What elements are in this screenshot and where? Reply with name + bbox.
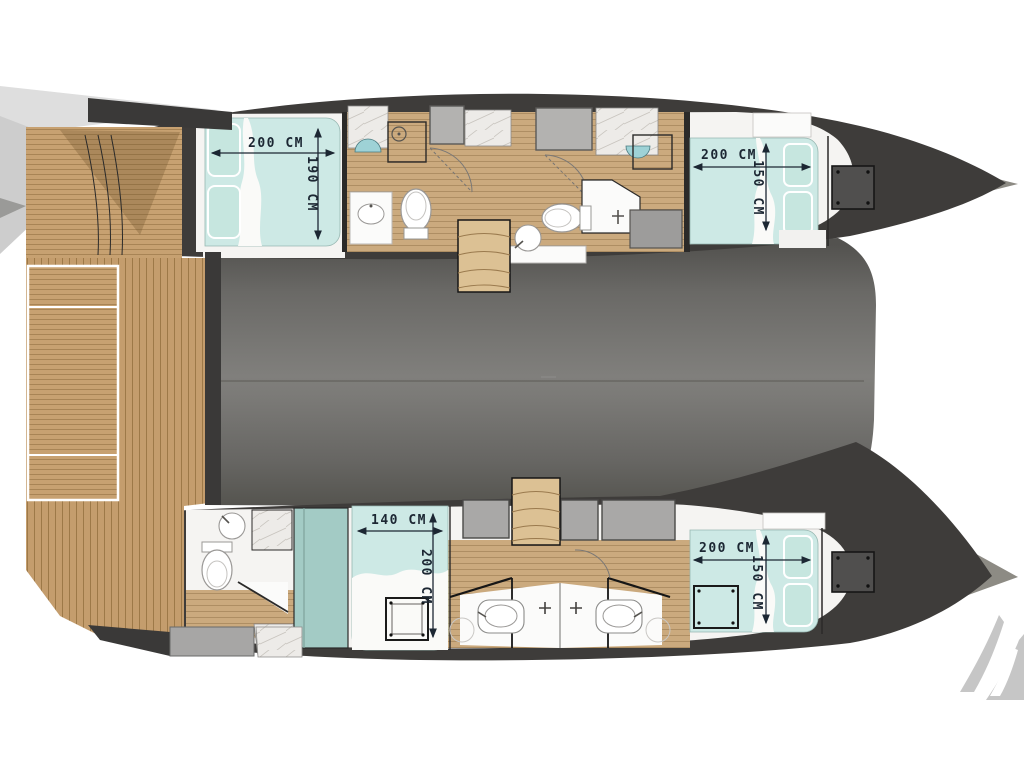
pillow	[208, 124, 240, 176]
floorplan-page: 200 CM 190 CM 200 CM 150 CM 140 CM 200 C…	[0, 0, 1024, 768]
sink-icon	[515, 225, 541, 251]
bulkhead-wall	[684, 112, 690, 252]
shelf	[203, 246, 345, 258]
dim-label: 150 CM	[749, 555, 764, 611]
starboard-bow	[832, 552, 874, 592]
pillow	[784, 144, 812, 186]
swim-step	[170, 627, 254, 656]
deck-hatch	[536, 108, 592, 150]
deck-hatch	[463, 500, 509, 538]
port-staircase	[458, 220, 510, 292]
port-bow	[832, 166, 874, 209]
pillow	[784, 536, 812, 578]
saloon-roof	[205, 238, 876, 506]
dim-label: 150 CM	[750, 160, 765, 216]
toilet-tank	[404, 228, 428, 239]
marble-panel	[465, 110, 511, 146]
dim-label: 200 CM	[248, 136, 304, 151]
starboard-staircase	[512, 478, 560, 545]
shelf	[763, 513, 825, 529]
cabinet	[630, 210, 682, 248]
port-aft-cabin	[203, 112, 347, 258]
toilet-icon	[401, 189, 431, 231]
dim-label: 140 CM	[371, 513, 427, 528]
shower-marble	[252, 510, 292, 550]
deck-hatch	[430, 106, 464, 144]
pillow	[784, 584, 812, 626]
transom-marble-step	[256, 627, 302, 657]
cockpit-saloon-wall	[205, 252, 221, 505]
cockpit-side-bench	[28, 266, 118, 500]
saloon-bridgedeck	[205, 238, 876, 506]
faucet-dot	[370, 205, 373, 208]
dim-label: 200 CM	[701, 148, 757, 163]
catamaran-floorplan: 200 CM 190 CM 200 CM 150 CM 140 CM 200 C…	[0, 0, 1024, 768]
deck-hatch	[561, 500, 598, 540]
toilet-icon	[542, 204, 582, 232]
toilet-tank	[580, 206, 591, 230]
pillow	[208, 186, 240, 238]
shelf	[753, 113, 811, 137]
bulkhead-wall	[342, 112, 347, 252]
pillow	[784, 192, 812, 234]
shower-head-dot	[398, 133, 401, 136]
deck-hatch	[602, 500, 675, 540]
dim-label: 200 CM	[418, 549, 433, 605]
dim-label: 190 CM	[304, 156, 319, 212]
dim-label: 200 CM	[699, 541, 755, 556]
step-shelf	[779, 230, 826, 248]
toilet-icon	[202, 550, 232, 590]
